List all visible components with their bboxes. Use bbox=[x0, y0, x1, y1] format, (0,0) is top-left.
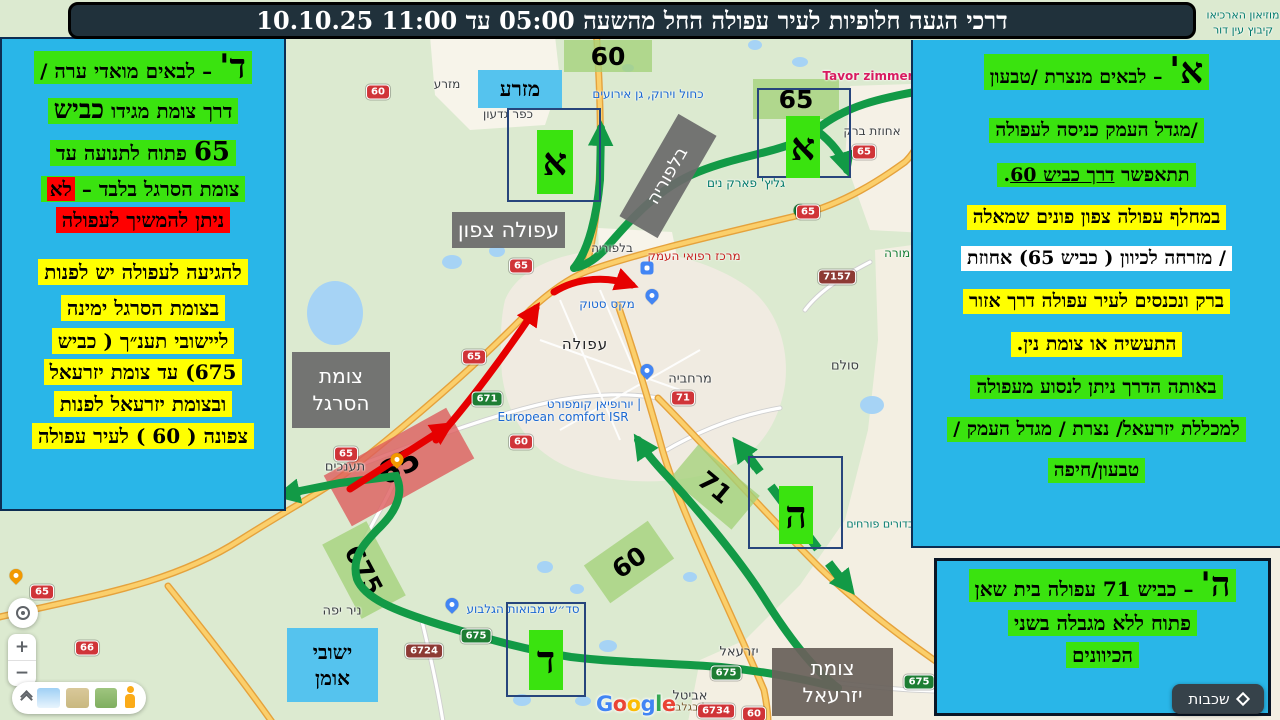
dalet-line-1-text: – לבאים מואדי ערה / bbox=[40, 59, 219, 83]
layers-icon bbox=[1236, 692, 1250, 706]
label-yishuvei-oman-line2: אומן bbox=[315, 665, 350, 691]
marker-dalet: ד bbox=[529, 630, 563, 690]
road-shield-65: 65 bbox=[30, 585, 54, 600]
imagery-bar bbox=[12, 682, 146, 714]
google-logo[interactable]: Google bbox=[596, 692, 676, 716]
poi-museum: מוזיאון הארכיאו bbox=[1207, 9, 1280, 22]
road-shield-65: 65 bbox=[462, 350, 486, 365]
dalet-line-8: ליישובי תענ״ך ( כביש bbox=[52, 328, 235, 354]
marker-alef-west: א bbox=[537, 130, 573, 194]
alef-line-1: א' – לבאים מנצרת /טבעון bbox=[984, 54, 1210, 90]
map-app: 60 65 675 60 71 65 bbox=[0, 0, 1280, 720]
google-letter: o bbox=[613, 692, 627, 716]
road-shield-71: 71 bbox=[671, 391, 695, 406]
alef-line-7: התעשיה או צומת נין. bbox=[1011, 332, 1183, 357]
label-tsomet-hasargel-line2: הסרגל bbox=[313, 390, 370, 417]
alef-line-3: תתאפשר דרך כביש 60. bbox=[997, 163, 1195, 188]
title-banner: דרכי הגעה חלופיות לעיר עפולה החל מהשעה 0… bbox=[68, 2, 1196, 39]
road-shield-675: 675 bbox=[711, 666, 742, 681]
label-tsomet-hasargel-line1: צומת bbox=[319, 363, 363, 390]
road-shield-6724: 6724 bbox=[405, 644, 443, 659]
pegman-icon[interactable] bbox=[123, 686, 136, 710]
google-letter: e bbox=[662, 692, 676, 716]
road-shield-65: 65 bbox=[509, 259, 533, 274]
my-location-icon bbox=[16, 606, 30, 620]
food-pin-west[interactable] bbox=[7, 566, 25, 584]
road-shield-65: 65 bbox=[334, 447, 358, 462]
dalet-letter: ד' bbox=[219, 47, 246, 87]
route-badge-60-bottom: 60 bbox=[584, 521, 674, 603]
poi-afula-city: עפולה bbox=[562, 335, 608, 353]
road-shield-60: 60 bbox=[366, 85, 390, 100]
store-pin-european[interactable] bbox=[638, 361, 656, 379]
poi-taanakhim: תענכים bbox=[325, 460, 365, 475]
alef-line-4: במחלף עפולה צפון פונים שמאלה bbox=[967, 205, 1227, 230]
imagery-thumbnail[interactable] bbox=[95, 688, 118, 708]
label-tsomet-yizreel-line2: יזרעאל bbox=[803, 682, 863, 709]
hey-line-1: ה' – כביש 71 עפולה בית שאן bbox=[969, 569, 1237, 602]
road-shield-675: 675 bbox=[461, 629, 492, 644]
alef-line-10: טבעון/חיפה bbox=[1048, 458, 1146, 483]
poi-glitz-park: גליץ' פארק נים bbox=[707, 176, 785, 190]
poi-sulam: סולם bbox=[831, 359, 859, 374]
dalet-line-9: 675) עד צומת יזרעאל bbox=[44, 359, 243, 385]
dalet-line-7: בצומת הסרגל ימינה bbox=[61, 295, 225, 321]
poi-nir-yafe: ניר יפה bbox=[322, 604, 361, 619]
dalet-line-10: ובצומת יזרעאל לפנות bbox=[54, 391, 233, 417]
label-tsomet-yizreel-line1: צומת bbox=[810, 655, 854, 682]
zoom-in-button[interactable]: + bbox=[8, 634, 36, 661]
poi-european-comfort-he: יורופיאן קומפורט | bbox=[547, 397, 641, 411]
dalet-line-2-text: דרך צומת מגידו bbox=[104, 99, 232, 123]
poi-european-comfort-en: European comfort ISR bbox=[497, 410, 628, 424]
poi-mizra: מזרע bbox=[434, 77, 461, 91]
panel-route-alef: א' – לבאים מנצרת /טבעון /מגדל העמק כניסה… bbox=[911, 40, 1280, 548]
google-letter: G bbox=[596, 692, 613, 716]
my-location-button[interactable] bbox=[8, 598, 38, 628]
alef-line-6: ברק ונכנסים לעיר עפולה דרך אזור bbox=[963, 289, 1230, 314]
hey-line-3: הכיוונים bbox=[1066, 642, 1139, 668]
road-shield-671: 671 bbox=[472, 392, 503, 407]
dalet-line-6: להגיעה לעפולה יש לפנות bbox=[38, 259, 247, 285]
zoom-control: + − bbox=[8, 634, 36, 686]
poi-max-stock: מקס סטוק bbox=[579, 297, 635, 311]
dalet-line-4: צומת הסרגל בלבד – לא bbox=[41, 176, 246, 202]
dalet-line-3: 65 פתוח לתנועה עד bbox=[50, 140, 236, 166]
dalet-line-1: ד' – לבאים מואדי ערה / bbox=[34, 51, 252, 84]
poi-ahuzat-barak: אחוזת ברק bbox=[843, 124, 900, 138]
fuel-pin[interactable] bbox=[443, 595, 461, 613]
poi-merhavia: מרחביה bbox=[668, 372, 712, 387]
poi-balfouria: בלפוריה bbox=[591, 241, 633, 255]
collapse-button[interactable] bbox=[22, 692, 31, 704]
road-shield-65: 65 bbox=[852, 145, 876, 160]
imagery-thumbnail[interactable] bbox=[37, 688, 60, 708]
dalet-line-4-text: צומת הסרגל בלבד – bbox=[75, 177, 239, 201]
hey-letter: ה' bbox=[1200, 565, 1230, 605]
dalet-line-2-kvish: כביש bbox=[54, 95, 104, 125]
alef-line-3-pre: תתאפשר bbox=[1114, 164, 1189, 186]
route-badge-71: 71 bbox=[670, 444, 760, 529]
panel-route-dalet: ד' – לבאים מואדי ערה / דרך צומת מגידו כב… bbox=[0, 37, 286, 511]
alef-line-5: / מזרחה לכיוון ( כביש 65) אחוזת bbox=[961, 246, 1232, 271]
poi-tavor-zimmer: Tavor zimmer bbox=[822, 69, 913, 83]
marker-alef-east: א bbox=[786, 116, 820, 178]
label-balfouria: בלפוריה bbox=[619, 114, 716, 238]
alef-line-2: /מגדל העמק כניסה לעפולה bbox=[989, 118, 1203, 143]
poi-haemek-medical: מרכז רפואי העמק bbox=[647, 249, 740, 263]
label-yishuvei-oman-line1: ישובי bbox=[313, 639, 352, 665]
alef-line-1-text: – לבאים מנצרת /טבעון bbox=[990, 66, 1169, 88]
poi-kachol-virok: כחול וירוק, גן אירועים bbox=[592, 87, 703, 101]
alef-letter: א' bbox=[1169, 50, 1203, 92]
label-tsomet-yizreel: צומת יזרעאל bbox=[772, 648, 893, 716]
dalet-line-5: ניתן להמשיך לעפולה bbox=[56, 207, 230, 233]
label-yishuvei-oman: ישובי אומן bbox=[287, 628, 378, 702]
label-tsomet-hasargel: צומת הסרגל bbox=[292, 352, 390, 428]
alef-line-8: באותה הדרך ניתן לנסוע מעפולה bbox=[970, 375, 1222, 400]
hey-line-2: פתוח ללא מגבלה בשני bbox=[1008, 610, 1197, 636]
label-afula-north: עפולה צפון bbox=[452, 212, 565, 248]
dalet-line-3-text: פתוח לתנועה עד bbox=[56, 141, 194, 165]
road-shield-675: 675 bbox=[904, 675, 935, 690]
google-letter: o bbox=[627, 692, 641, 716]
road-shield-65: 65 bbox=[796, 205, 820, 220]
dalet-line-11: צפונה ( 60 ) לעיר עפולה bbox=[32, 423, 254, 449]
marker-hey: ה bbox=[779, 486, 813, 544]
alef-line-9: למכללת יזרעאל/ נצרת / מגדל העמק / bbox=[947, 417, 1245, 442]
road-shield-60: 60 bbox=[509, 435, 533, 450]
dalet-line-4-no: לא bbox=[47, 177, 75, 201]
alef-line-3-road60: דרך כביש 60 bbox=[1010, 164, 1114, 186]
poi-balloons: כדורים פורחים bbox=[846, 518, 913, 531]
layers-button[interactable]: שכבות bbox=[1172, 684, 1264, 714]
label-mizra: מזרע bbox=[478, 70, 562, 108]
store-pin-max-stock[interactable] bbox=[643, 286, 661, 304]
google-letter: l bbox=[655, 692, 662, 716]
hospital-icon[interactable] bbox=[641, 262, 654, 275]
poi-yizreel: יזרעאל bbox=[720, 645, 759, 660]
hey-line-1-text: – כביש 71 עפולה בית שאן bbox=[975, 577, 1201, 601]
road-shield-66: 66 bbox=[75, 641, 99, 656]
imagery-thumbnail[interactable] bbox=[66, 688, 89, 708]
layers-label: שכבות bbox=[1188, 690, 1229, 708]
road-shield-60: 60 bbox=[742, 707, 766, 720]
route-badge-60-top: 60 bbox=[564, 40, 652, 72]
poi-ein-dor: קיבוץ עין דור bbox=[1213, 24, 1273, 37]
dalet-line-3-65: 65 bbox=[194, 137, 230, 167]
google-letter: g bbox=[641, 692, 656, 716]
dalet-line-2: דרך צומת מגידו כביש bbox=[48, 98, 239, 124]
road-shield-7157: 7157 bbox=[818, 270, 856, 285]
road-shield-6734: 6734 bbox=[697, 704, 735, 719]
